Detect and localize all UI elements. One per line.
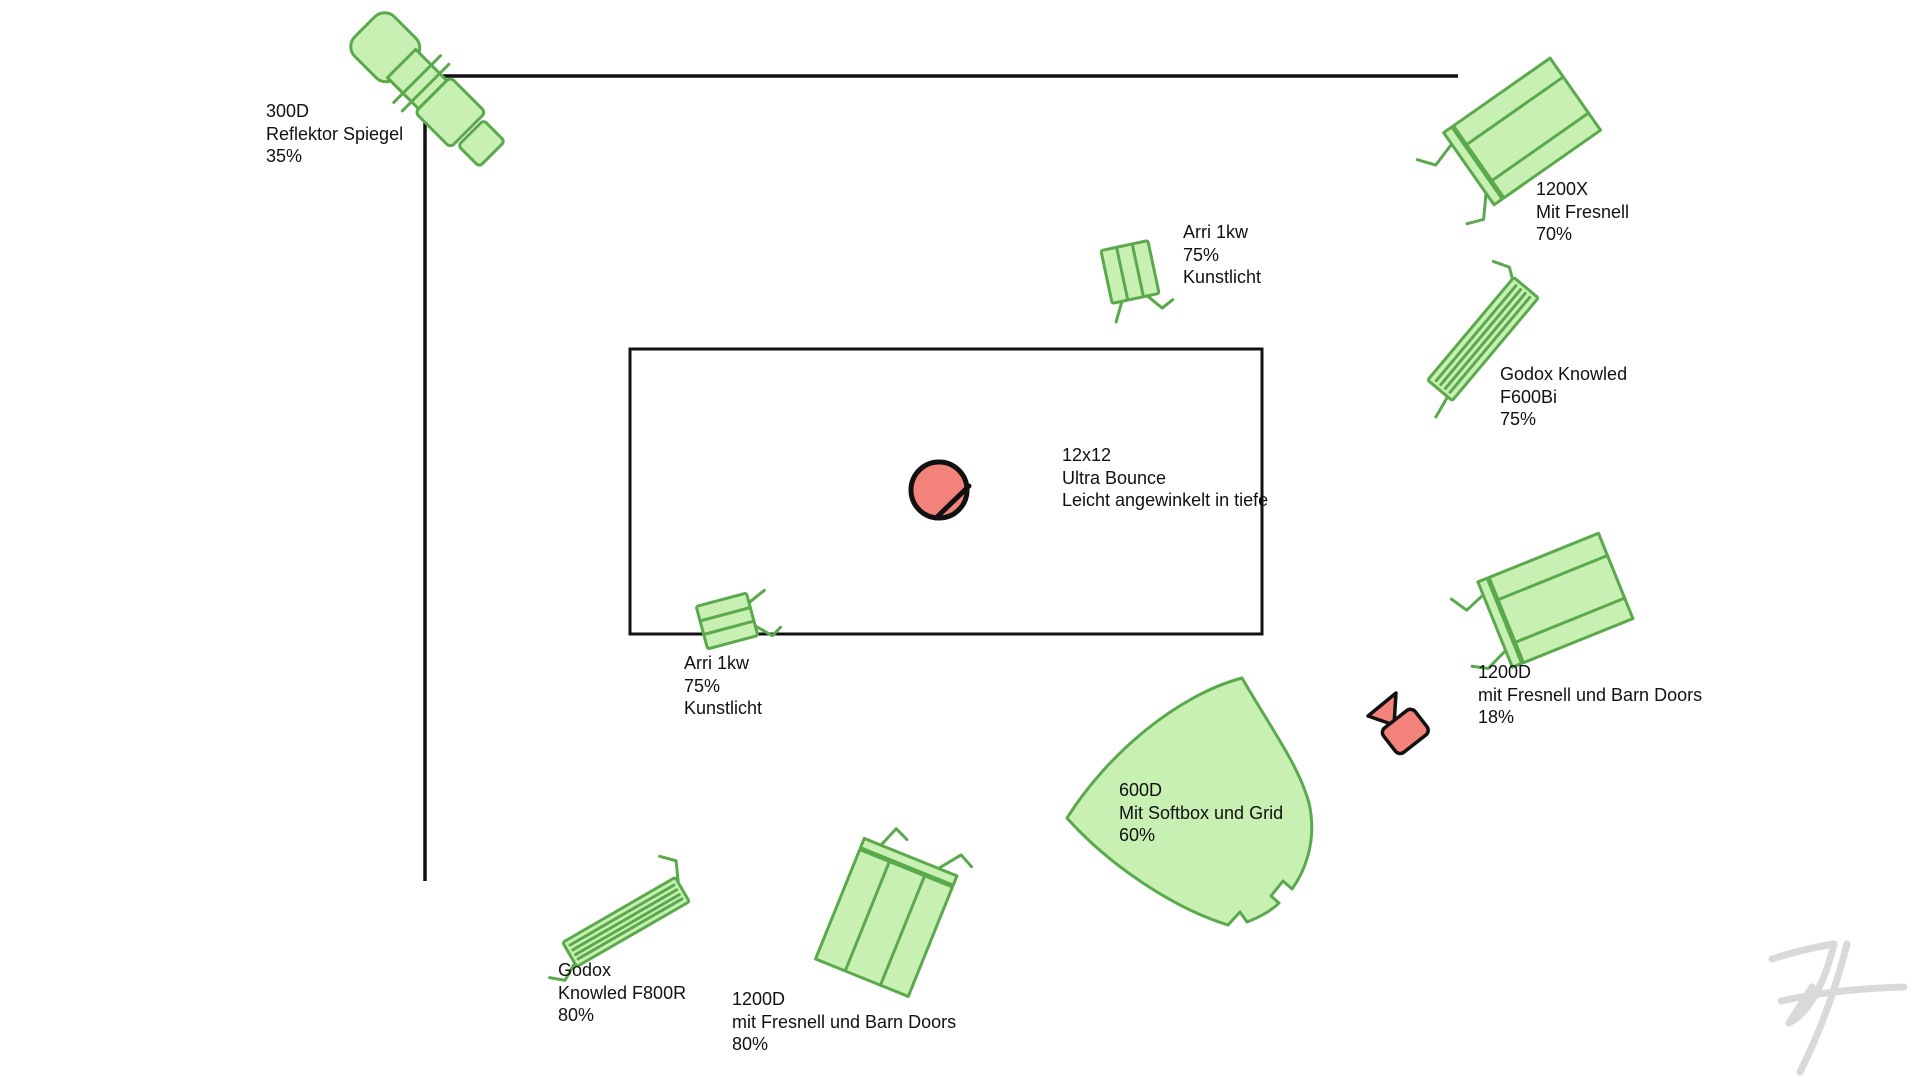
label-light-300d: 300D Reflektor Spiegel 35% [266, 100, 403, 168]
label-light-600d: 600D Mit Softbox und Grid 60% [1119, 779, 1283, 847]
watermark-logo [1772, 944, 1904, 1072]
label-light-1200d-bottom: 1200D mit Fresnell und Barn Doors 80% [732, 988, 956, 1056]
label-arri-floor: Arri 1kw 75% Kunstlicht [684, 652, 762, 720]
light-1200d-right-icon [1444, 533, 1633, 681]
light-1200d-bottom-icon [816, 819, 975, 1000]
subject-marker [911, 462, 969, 518]
light-arri-top-icon [1101, 238, 1175, 322]
label-ultra-bounce: 12x12 Ultra Bounce Leicht angewinkelt in… [1062, 444, 1268, 512]
label-godox-f600bi: Godox Knowled F600Bi 75% [1500, 363, 1627, 431]
camera-icon [1368, 693, 1431, 756]
light-arri-floor-icon [696, 587, 782, 653]
label-godox-f800r: Godox Knowled F800R 80% [558, 959, 686, 1027]
lighting-plan-diagram: 300D Reflektor Spiegel 35% 1200X Mit Fre… [0, 0, 1920, 1080]
label-light-1200x: 1200X Mit Fresnell 70% [1536, 178, 1629, 246]
label-arri-top: Arri 1kw 75% Kunstlicht [1183, 221, 1261, 289]
label-light-1200d-right: 1200D mit Fresnell und Barn Doors 18% [1478, 661, 1702, 729]
